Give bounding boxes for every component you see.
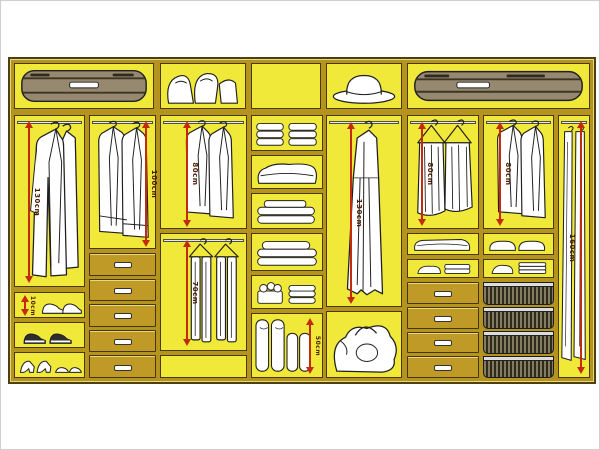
shoe-shelf-3	[14, 352, 85, 378]
linen-shelf-3	[251, 193, 323, 229]
shoe-shelf-2	[14, 322, 85, 348]
measurement-label: 50cm	[314, 336, 321, 356]
measure-jumper-section: 80cm	[496, 122, 504, 226]
linen-shelf-5	[251, 275, 323, 309]
wardrobe-diagram: 130cm 10cm	[0, 0, 600, 450]
wire-basket	[483, 307, 554, 330]
bag-cubby	[326, 311, 402, 378]
top-cubby-hat	[326, 63, 402, 109]
trouser-hanging-section: 70cm	[160, 233, 247, 351]
measurement-label: 100cm	[150, 170, 158, 199]
pillows-illustration	[484, 234, 553, 254]
drawer	[407, 307, 479, 329]
left-drawer-stack	[89, 253, 156, 378]
long-garment-section: 160cm	[558, 115, 590, 378]
folded-duvet-illustration	[252, 156, 322, 188]
shirts-illustration	[161, 116, 246, 228]
measurement-label: 80cm	[191, 162, 199, 185]
drawer	[89, 355, 156, 378]
linen-shelf-2	[251, 155, 323, 189]
hat-illustration	[327, 64, 401, 108]
wire-basket-stack	[483, 282, 554, 378]
drawer	[407, 332, 479, 354]
pillow-shelf	[483, 233, 554, 255]
drawer	[407, 356, 479, 378]
small-empty-cubby	[160, 355, 247, 378]
roll-storage-section: 50cm	[251, 313, 323, 378]
top-cubby-suitcase	[14, 63, 154, 109]
linen-shelf-4	[251, 233, 323, 271]
wire-basket	[483, 331, 554, 354]
measure-roll-section: 50cm	[306, 318, 314, 374]
top-cubby-empty	[251, 63, 321, 109]
measure-dress-section: 130cm	[347, 122, 355, 304]
measure-coat-section: 130cm	[25, 121, 33, 283]
hanging-trousers-illustration	[161, 234, 246, 350]
drawer	[89, 253, 156, 276]
coat-hanging-section: 130cm	[14, 115, 85, 287]
folded-duvet-illustration	[408, 234, 478, 254]
measurement-label: 10cm	[29, 295, 36, 315]
long-suitcase-illustration	[408, 64, 589, 108]
folded-towels-illustration	[252, 194, 322, 228]
wardrobe-frame: 130cm 10cm	[8, 57, 596, 384]
measurement-label: 130cm	[33, 188, 41, 217]
top-cubby-bags	[160, 63, 246, 109]
folded-pile-illustration	[408, 260, 478, 277]
bags-illustration	[161, 64, 245, 108]
jumper-hanging-section: 80cm	[483, 115, 554, 229]
drawer	[407, 282, 479, 304]
measure-shoe-shelf: 10cm	[21, 295, 29, 316]
stack-shelf	[483, 259, 554, 278]
folded-trouser-hanging-section: 80cm	[407, 115, 479, 229]
measurement-label: 80cm	[426, 162, 434, 185]
measurement-label: 80cm	[504, 162, 512, 185]
large-bag-illustration	[327, 312, 401, 377]
measure-shirt-section: 80cm	[183, 121, 191, 227]
jackets-on-hangers-illustration	[484, 116, 553, 228]
measure-folded-trouser-section: 80cm	[418, 122, 426, 226]
jacket-hanging-section: 100cm	[89, 115, 156, 249]
right-drawer-stack	[407, 282, 479, 378]
folded-towels-illustration	[252, 234, 322, 270]
folded-towels-illustration	[252, 116, 322, 150]
measurement-label: 130cm	[355, 199, 363, 228]
drawer	[89, 304, 156, 327]
measure-long-garment-section: 160cm	[577, 121, 585, 374]
small-items-illustration	[252, 276, 322, 308]
suitcase-illustration	[15, 64, 153, 108]
shoe-shelf-1: 10cm	[14, 292, 85, 318]
long-dress-illustration	[327, 116, 401, 306]
wire-basket	[483, 282, 554, 305]
shoes-illustration	[15, 323, 84, 347]
folded-pile-shelf	[407, 259, 479, 278]
dress-hanging-section: 130cm	[326, 115, 402, 307]
high-heels-illustration	[15, 353, 84, 377]
measure-jacket-section: 100cm	[142, 121, 150, 247]
duvet-shelf	[407, 233, 479, 255]
measure-trouser-section: 70cm	[183, 240, 191, 346]
wire-basket	[483, 356, 554, 379]
folded-stack-illustration	[484, 260, 553, 277]
drawer	[89, 279, 156, 302]
shirt-hanging-section: 80cm	[160, 115, 247, 229]
drawer	[89, 330, 156, 353]
linen-shelf-1	[251, 115, 323, 151]
measurement-label: 160cm	[568, 233, 576, 262]
measurement-label: 70cm	[191, 281, 199, 304]
top-cubby-long-suitcase	[407, 63, 590, 109]
